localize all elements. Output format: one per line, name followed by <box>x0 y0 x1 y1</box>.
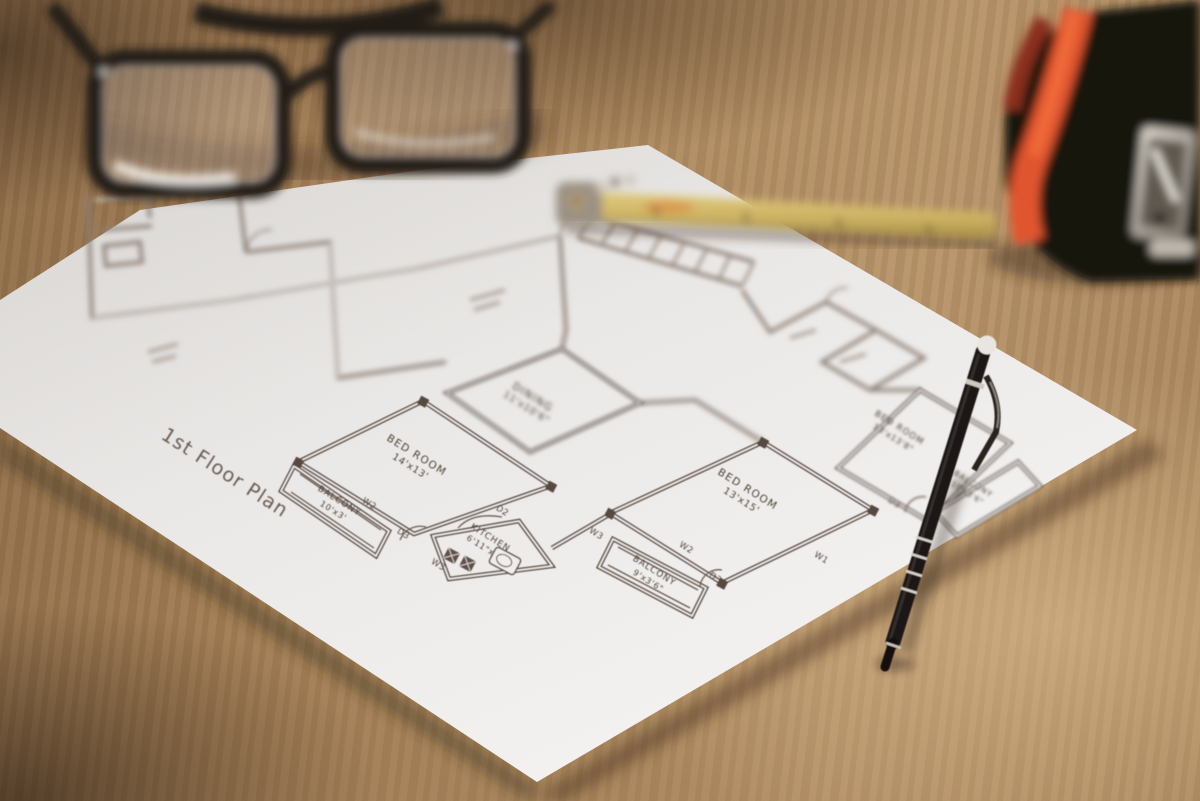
desk-scene: DINING 11'x10'6" BED ROOM 14'x13' BALCON… <box>0 0 1200 801</box>
glasses-hinge-screw-left <box>100 68 108 76</box>
ruler-orange-mark <box>642 201 694 213</box>
tape-clip-foot <box>1150 240 1194 256</box>
glasses-temple-left <box>52 6 100 68</box>
measuring-tape <box>1005 0 1200 282</box>
photo-canvas: DINING 11'x10'6" BED ROOM 14'x13' BALCON… <box>0 0 1200 801</box>
glasses-hinge-screw-right <box>508 42 516 50</box>
pen-top-button <box>978 336 997 355</box>
